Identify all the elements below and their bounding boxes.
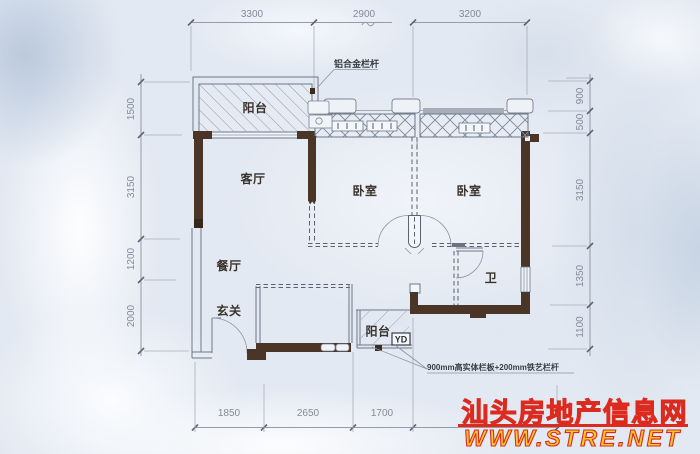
- svg-text:1100: 1100: [575, 316, 586, 338]
- svg-text:YD: YD: [395, 335, 408, 345]
- svg-text:餐厅: 餐厅: [216, 258, 241, 273]
- svg-text:卫: 卫: [485, 271, 498, 285]
- svg-text:3200: 3200: [459, 9, 482, 20]
- svg-text:客厅: 客厅: [239, 171, 265, 186]
- svg-text:1850: 1850: [218, 408, 241, 419]
- svg-text:1200: 1200: [126, 247, 137, 270]
- svg-text:1500: 1500: [126, 97, 137, 120]
- svg-text:3150: 3150: [126, 175, 137, 198]
- svg-text:3150: 3150: [575, 178, 586, 201]
- svg-text:2650: 2650: [297, 408, 320, 419]
- svg-text:900mm高实体栏板+200mm铁艺栏杆: 900mm高实体栏板+200mm铁艺栏杆: [427, 362, 559, 372]
- svg-text:卧室: 卧室: [352, 183, 377, 198]
- svg-text:铝合金栏杆: 铝合金栏杆: [334, 58, 379, 69]
- svg-text:阳台: 阳台: [365, 324, 390, 339]
- svg-text:2900: 2900: [353, 9, 376, 20]
- svg-text:卧室: 卧室: [456, 183, 481, 198]
- svg-text:1350: 1350: [575, 264, 586, 287]
- svg-text:2000: 2000: [126, 304, 137, 327]
- svg-text:汕头房地产信息网: 汕头房地产信息网: [462, 397, 687, 428]
- svg-text:1700: 1700: [371, 408, 394, 419]
- svg-text:WWW.STRE.NET: WWW.STRE.NET: [464, 425, 681, 451]
- svg-text:900: 900: [575, 87, 586, 104]
- svg-text:阳台: 阳台: [242, 100, 267, 115]
- svg-text:500: 500: [575, 113, 586, 130]
- svg-text:玄关: 玄关: [216, 303, 241, 318]
- svg-text:3300: 3300: [241, 9, 264, 20]
